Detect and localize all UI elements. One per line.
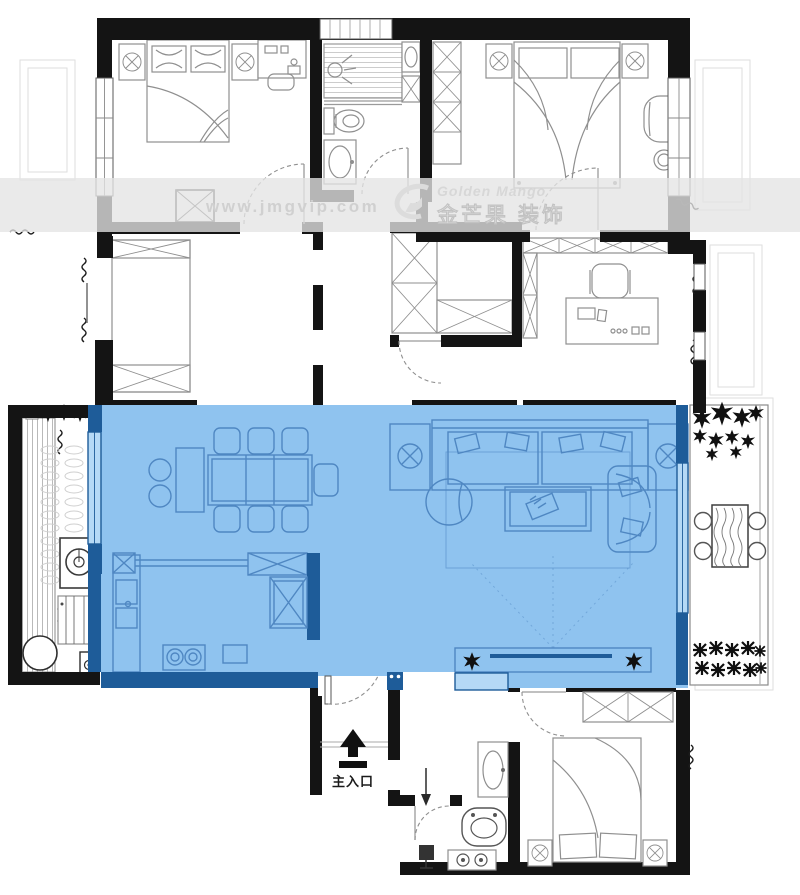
apartment-floor-plan: www.jmgvip.com Golden Mango 金芒果 装饰 — [0, 0, 800, 895]
closet-wardrobe-left — [392, 233, 437, 333]
door-bedroom-bottom — [522, 692, 566, 736]
arrow-up-icon — [339, 729, 367, 768]
corner-basin — [402, 42, 420, 72]
balcony-right — [690, 402, 768, 685]
highlighted-zone — [88, 405, 688, 704]
shower-threshold — [324, 101, 402, 105]
window — [320, 19, 392, 39]
study-cabinet-left — [523, 253, 537, 338]
lamp-icon — [490, 52, 508, 70]
double-bed — [553, 738, 641, 862]
lamp-icon — [647, 845, 663, 861]
lamp-icon — [236, 53, 254, 71]
round-table — [23, 636, 57, 670]
watermark: www.jmgvip.com Golden Mango 金芒果 装饰 — [0, 178, 800, 232]
under-counter-washer — [448, 850, 496, 870]
walk-in-closet — [392, 233, 512, 333]
door-bathroom-bottom — [415, 806, 449, 840]
double-bed — [514, 42, 620, 188]
bedroom-bottom — [528, 692, 673, 866]
stool — [695, 513, 712, 530]
window — [694, 332, 705, 360]
bedroom-top-right — [433, 42, 684, 188]
vanity-sink — [478, 742, 508, 797]
window — [694, 264, 705, 290]
flow-arrow-icon — [421, 768, 431, 806]
lamp-icon — [123, 53, 141, 71]
bathroom-top — [324, 42, 420, 184]
door-closet — [399, 341, 441, 383]
sink-icon — [324, 140, 356, 184]
study-desk — [566, 298, 658, 344]
desk — [258, 40, 306, 90]
lamp-icon — [626, 52, 644, 70]
lamp-icon — [532, 845, 548, 861]
watermark-brand-cn: 金芒果 装饰 — [436, 203, 566, 227]
watermark-band — [0, 178, 800, 232]
bedroom-top-left — [119, 40, 306, 142]
study-room — [523, 238, 668, 344]
floor-plan-page: www.jmgvip.com Golden Mango 金芒果 装饰 — [0, 0, 800, 895]
toilet-icon — [462, 808, 506, 846]
double-bed — [147, 40, 229, 142]
main-entrance: 主入口 — [332, 729, 374, 789]
wardrobe — [433, 42, 461, 164]
stool — [749, 513, 766, 530]
study-chair — [590, 264, 630, 298]
balcony-cabinet — [58, 596, 92, 644]
bath-cabinet — [402, 76, 420, 102]
shower-area — [324, 44, 402, 98]
stool — [695, 543, 712, 560]
entry-door-frame — [387, 672, 403, 690]
toilet-icon — [324, 108, 364, 134]
glass-partition — [455, 673, 508, 690]
stool — [749, 543, 766, 560]
entrance-label: 主入口 — [332, 774, 374, 789]
watermark-brand-en: Golden Mango — [437, 183, 546, 199]
watermark-url: www.jmgvip.com — [205, 197, 379, 216]
wardrobe-column — [112, 240, 190, 392]
closet-wardrobe-bottom — [437, 300, 512, 333]
wardrobe — [583, 692, 673, 722]
